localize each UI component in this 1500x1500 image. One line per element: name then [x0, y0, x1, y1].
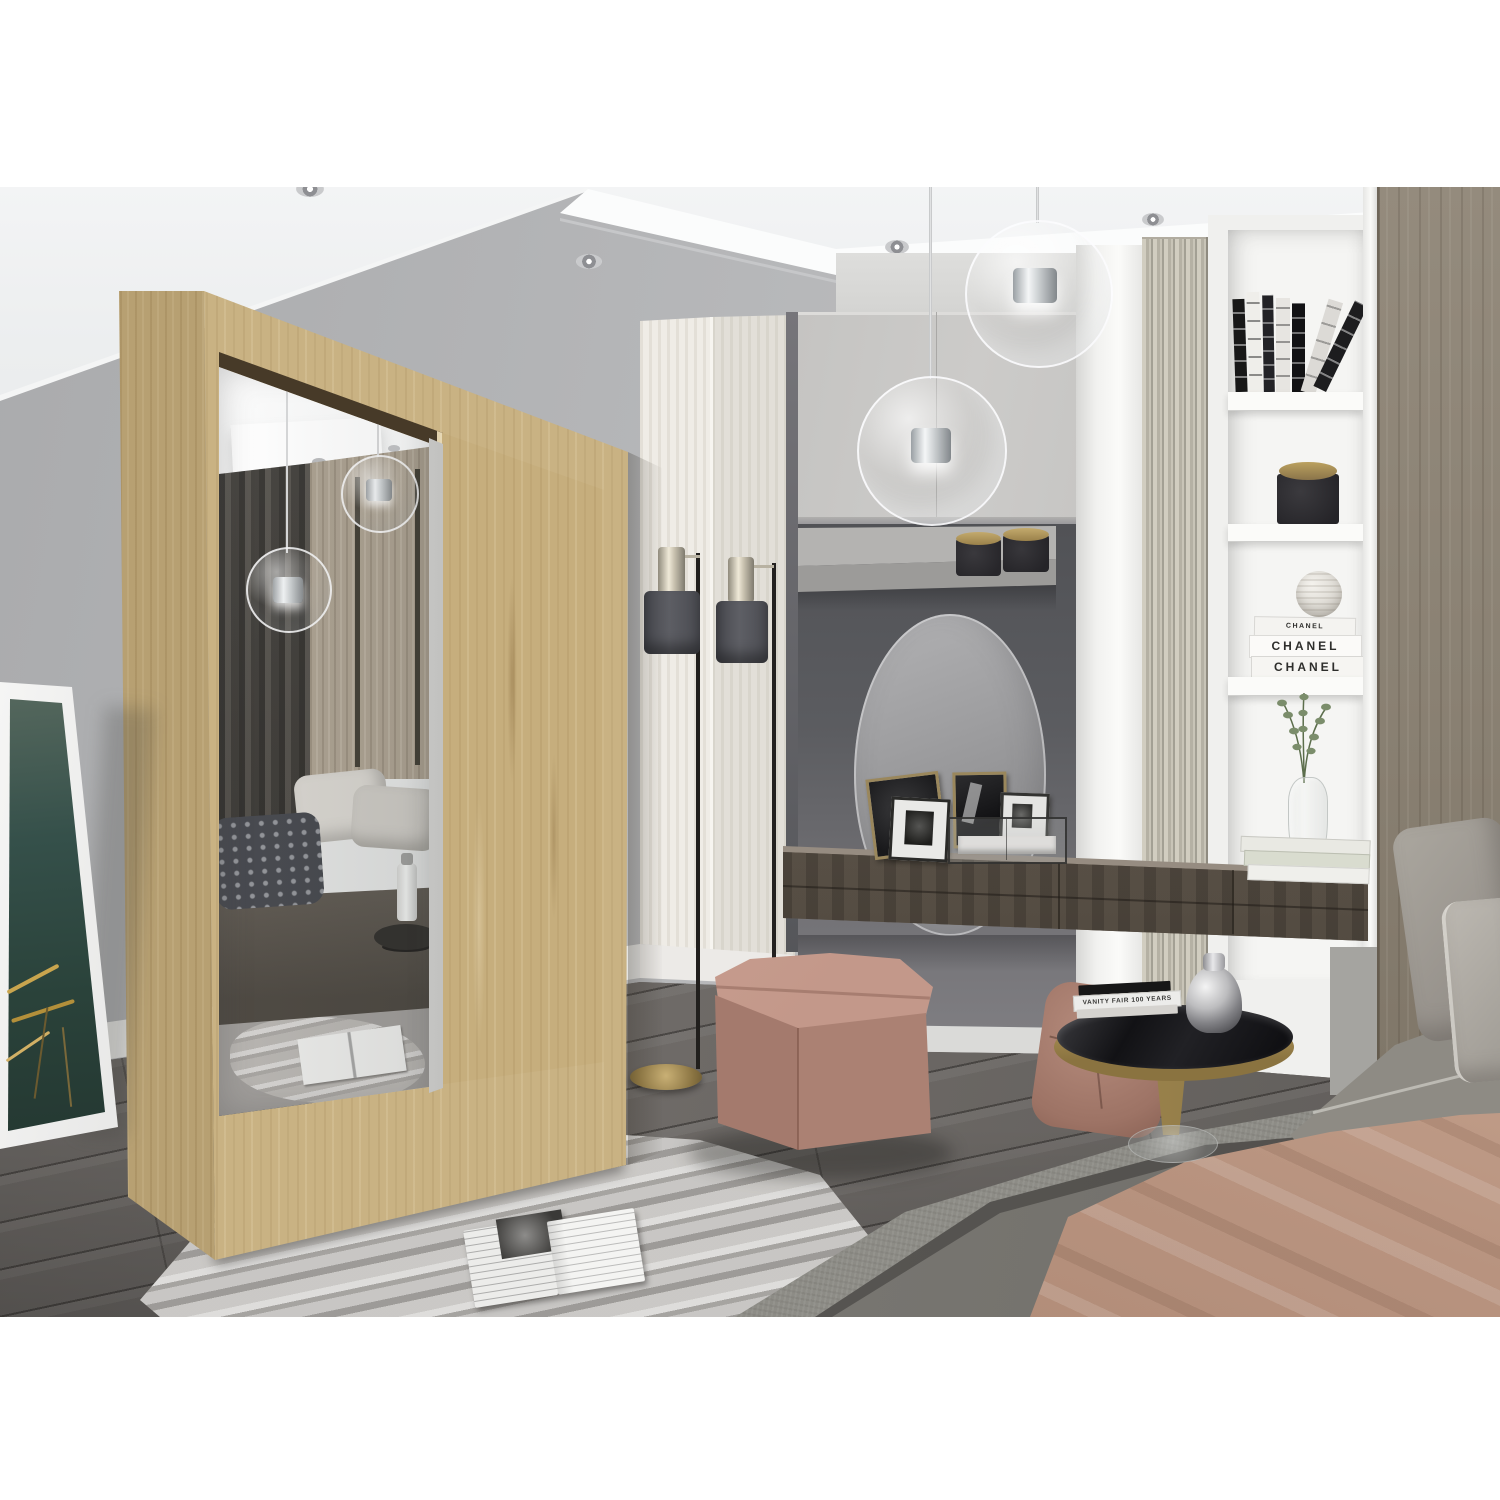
globe-lamp-module — [911, 428, 951, 463]
book-spine — [1262, 295, 1275, 392]
picture-frame-black — [888, 796, 950, 862]
candle-jar-lid — [956, 532, 1001, 545]
wood-door-knots — [437, 431, 604, 1085]
black-candle-lid — [1279, 462, 1337, 480]
chanel-book-middle: CHANEL — [1249, 635, 1362, 658]
spotlight-icon — [885, 240, 909, 254]
screenshot-canvas: CHANEL CHANEL CHANEL — [0, 0, 1500, 1500]
glass-trinket-box — [948, 817, 1067, 864]
table-glass-base — [1128, 1125, 1218, 1163]
sphere-ridges — [1296, 571, 1342, 617]
spotlight-icon — [576, 254, 602, 269]
corner-edge-highlight — [710, 317, 713, 950]
right-panel-edge — [1377, 187, 1380, 1099]
candle-jar-lid — [1003, 528, 1049, 541]
floor-lamp-base — [630, 1064, 702, 1090]
pouf-seam — [797, 1028, 799, 1150]
pendant-cord — [1036, 187, 1039, 223]
mirror-tint — [219, 367, 443, 1116]
globe-lamp-module — [1013, 268, 1057, 303]
eucalyptus-sprig — [1252, 685, 1356, 785]
shelf-board — [1228, 392, 1363, 411]
spotlight-icon — [296, 187, 324, 197]
bedroom-photo: CHANEL CHANEL CHANEL — [0, 187, 1500, 1317]
chanel-book-bottom: CHANEL — [1251, 656, 1365, 679]
spotlight-icon — [1142, 213, 1164, 226]
floor-lamp-shade — [716, 601, 768, 663]
silver-vase — [1186, 967, 1242, 1033]
floor-lamp-pole — [772, 563, 776, 961]
floor-lamp-chrome — [658, 547, 685, 595]
pendant-cord — [929, 187, 932, 379]
book-spine — [1276, 298, 1290, 392]
box-edge — [1006, 819, 1007, 860]
console-seam-vertical — [1058, 863, 1060, 929]
stacked-books — [1239, 836, 1368, 884]
black-candle — [1277, 474, 1339, 524]
shelf-board — [1228, 524, 1363, 542]
console-seam-vertical — [1232, 870, 1234, 934]
magazine-right-page — [547, 1208, 645, 1295]
floor-lamp-chrome — [728, 557, 754, 603]
floor-lamp-shade — [644, 591, 700, 654]
table-books: VANITY FAIR 100 YEARS — [1072, 970, 1184, 1024]
box-contents — [958, 836, 1056, 854]
silver-vase-neck — [1203, 953, 1225, 971]
frame-art — [904, 810, 934, 845]
